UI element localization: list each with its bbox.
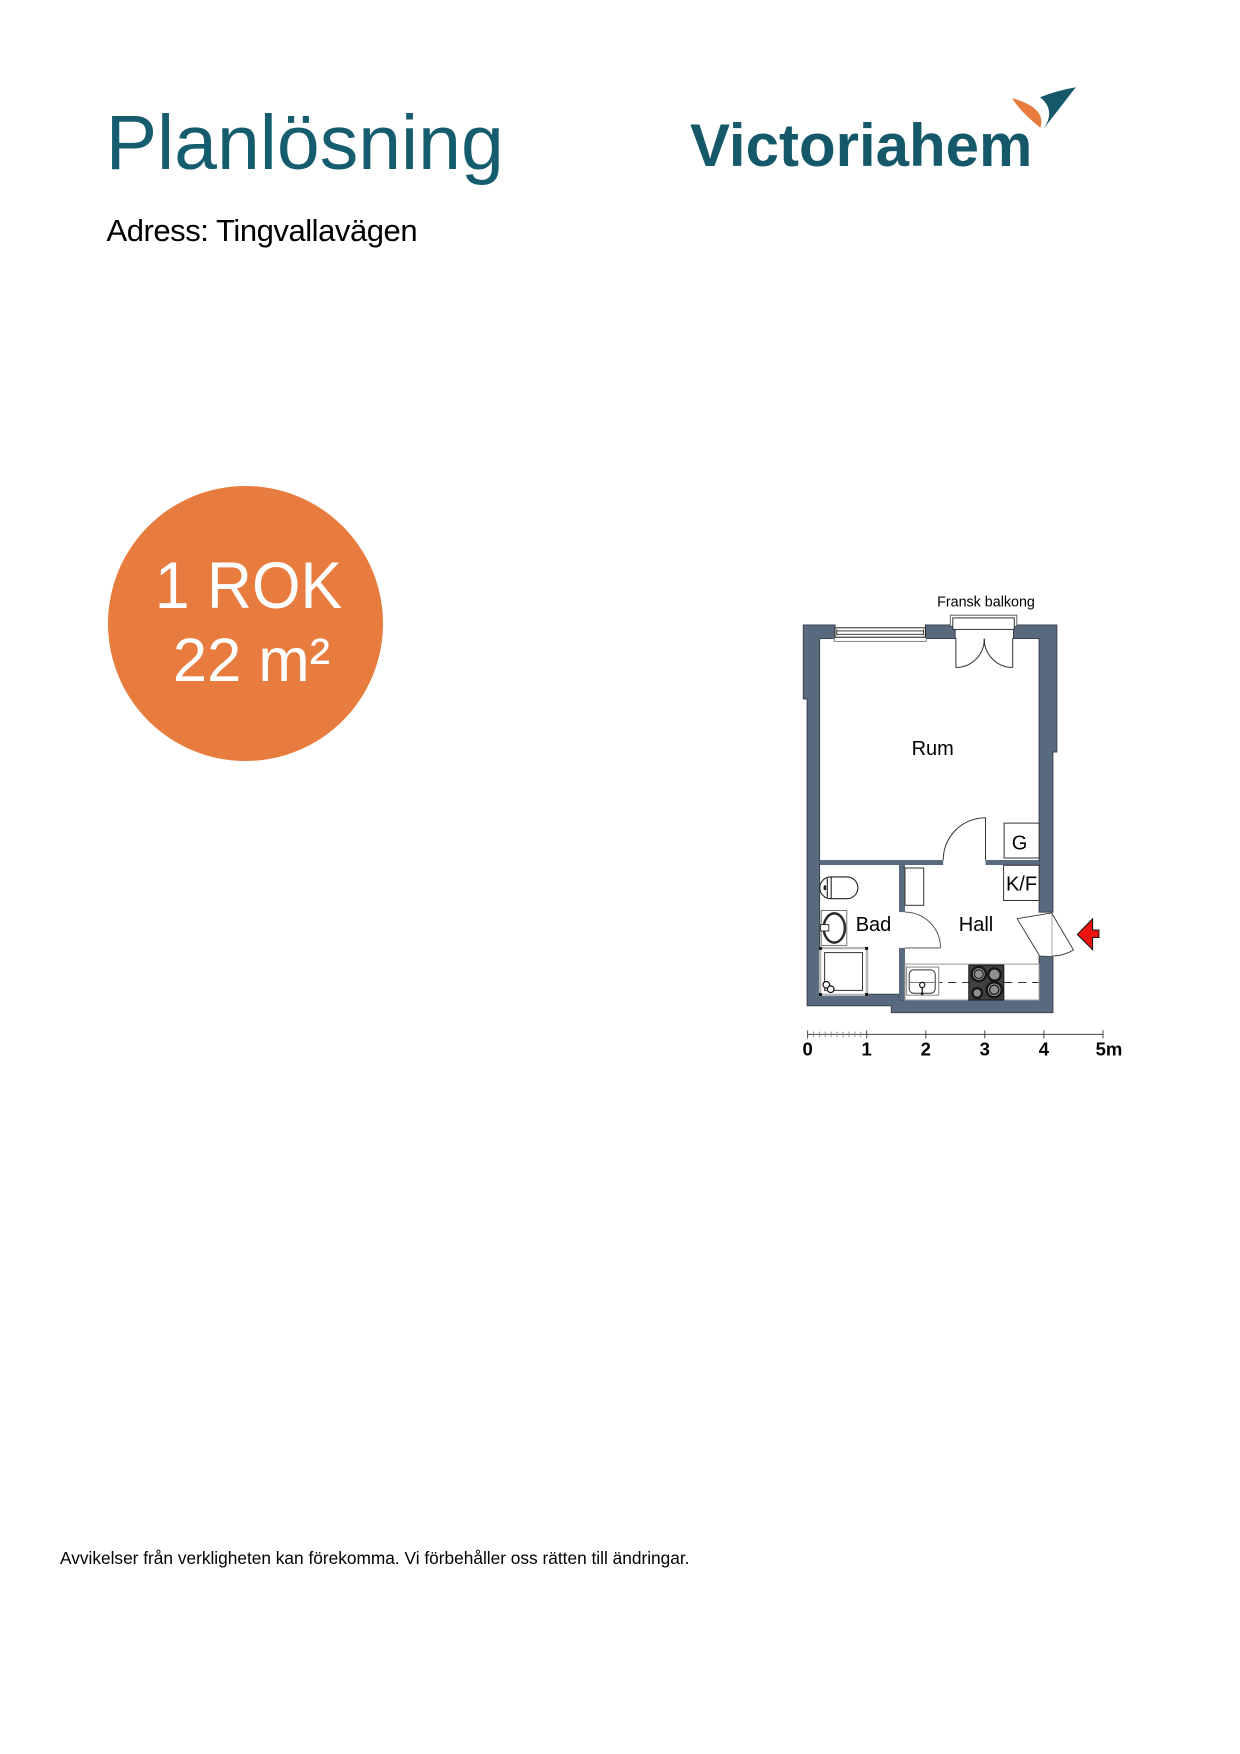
svg-text:0: 0 — [802, 1038, 812, 1059]
svg-text:Bad: Bad — [856, 914, 892, 936]
svg-text:Fransk balkong: Fransk balkong — [937, 595, 1035, 611]
svg-text:2: 2 — [921, 1038, 931, 1059]
svg-text:Hall: Hall — [959, 914, 993, 936]
svg-text:5m: 5m — [1096, 1038, 1123, 1059]
svg-text:K/F: K/F — [1006, 874, 1037, 896]
svg-text:Rum: Rum — [912, 738, 954, 760]
svg-text:4: 4 — [1039, 1038, 1050, 1059]
svg-text:G: G — [1012, 833, 1028, 855]
svg-text:3: 3 — [980, 1038, 990, 1059]
svg-text:1: 1 — [862, 1038, 872, 1059]
